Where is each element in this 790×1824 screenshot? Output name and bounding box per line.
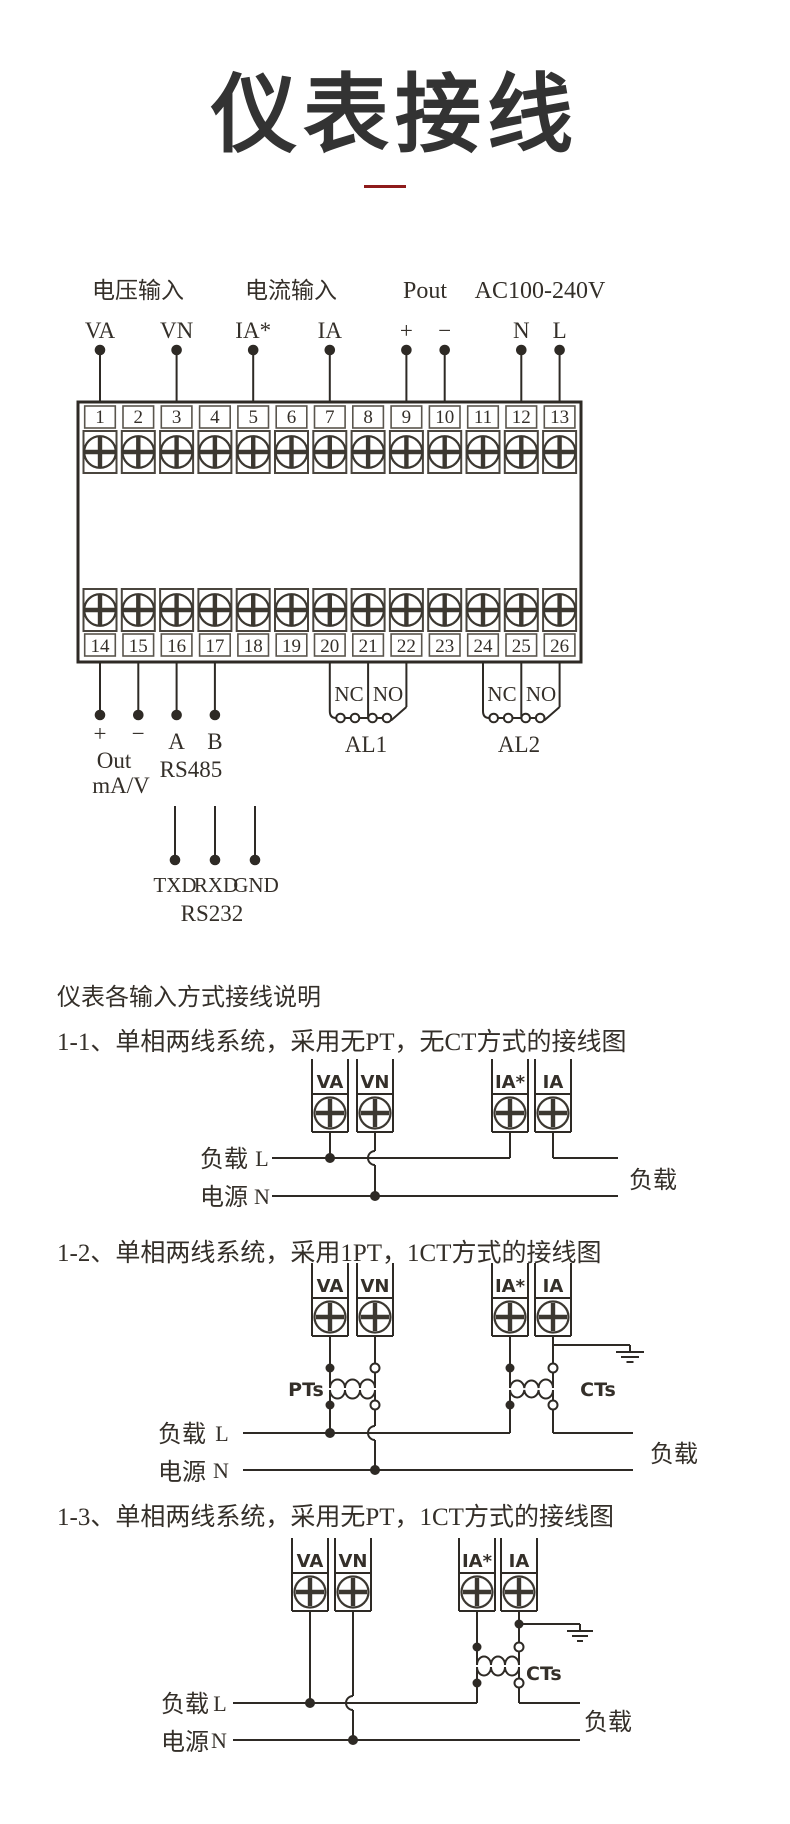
pin-txd: TXD xyxy=(153,873,196,897)
label-ac-supply: AC100-240V xyxy=(475,278,606,304)
term-vn: VN xyxy=(339,1551,368,1572)
diagram-1-3: VA VN IA* IA CTs 负载 L 电源 N 负载 xyxy=(0,1538,790,1763)
supply-lines xyxy=(243,1428,633,1475)
pt-label: PTs xyxy=(288,1379,324,1401)
term-va: VA xyxy=(317,1276,344,1297)
source-left-label: 电源 xyxy=(200,1184,248,1211)
term-ia-star: IA* xyxy=(495,1276,526,1297)
label-voltage-input: 电压输入 xyxy=(92,278,184,303)
terminal-number: 20 xyxy=(320,636,339,657)
terminal-number: 12 xyxy=(512,407,531,428)
supply-lines xyxy=(233,1698,580,1745)
pin-ia-star: IA* xyxy=(235,318,271,343)
term-vn: VN xyxy=(361,1276,390,1297)
al2-label: AL2 xyxy=(498,732,540,757)
load-right-label: 负载 xyxy=(584,1709,632,1736)
line-l-label: L xyxy=(213,1691,226,1716)
pin-pout-plus: + xyxy=(400,318,413,343)
pin-l: L xyxy=(553,318,567,343)
wires xyxy=(272,1132,618,1201)
title-accent-rule xyxy=(364,185,406,188)
terminal-number: 10 xyxy=(435,407,454,428)
terminal-number: 23 xyxy=(435,636,454,657)
load-left-label: 负载 xyxy=(158,1421,206,1448)
line-n-label: N xyxy=(213,1458,229,1483)
terminal-number: 16 xyxy=(167,636,186,657)
terminal-number: 7 xyxy=(325,407,335,428)
label-current-input: 电流输入 xyxy=(245,278,337,303)
source-left-label: 电源 xyxy=(158,1459,206,1486)
ct-label: CTs xyxy=(580,1379,616,1401)
terminal-number: 19 xyxy=(282,636,301,657)
terminal-number: 17 xyxy=(205,636,224,657)
top-lead-wires xyxy=(95,345,565,403)
terminal-number: 6 xyxy=(287,407,297,428)
rs232-lead-wires xyxy=(170,806,261,865)
main-wiring-diagram: 电压输入 电流输入 Pout AC100-240V VA VN IA* IA +… xyxy=(0,230,790,930)
pin-vn: VN xyxy=(160,318,194,343)
terminal-number: 24 xyxy=(474,636,494,657)
label-pout: Pout xyxy=(403,278,447,304)
pin-gnd: GND xyxy=(233,873,279,897)
term-ia: IA xyxy=(543,1072,564,1093)
term-ia-star: IA* xyxy=(462,1551,493,1572)
pin-ia: IA xyxy=(318,318,343,343)
pin-n: N xyxy=(513,318,530,343)
terminal-number: 5 xyxy=(248,407,258,428)
al2-nc-label: NC xyxy=(487,682,516,706)
terminal-number: 21 xyxy=(359,636,378,657)
label-out-unit: mA/V xyxy=(92,773,150,798)
al1-label: AL1 xyxy=(345,732,387,757)
term-ia: IA xyxy=(543,1276,564,1297)
pin-out-plus: + xyxy=(94,721,107,746)
term-vn: VN xyxy=(361,1072,390,1093)
term-va: VA xyxy=(317,1072,344,1093)
terminal-number: 3 xyxy=(172,407,182,428)
al1-nc-label: NC xyxy=(334,682,363,706)
term-ia-star: IA* xyxy=(495,1072,526,1093)
load-left-label: 负载 xyxy=(161,1691,209,1718)
line-l-label: L xyxy=(255,1146,268,1171)
ground-symbol xyxy=(515,1620,594,1642)
al1-no-label: NO xyxy=(373,682,403,706)
terminal-number: 8 xyxy=(363,407,373,428)
pin-out-minus: − xyxy=(132,721,145,746)
voltage-wires xyxy=(310,1611,353,1740)
terminal-number: 22 xyxy=(397,636,416,657)
label-rs485: RS485 xyxy=(160,757,223,782)
terminal-number: 4 xyxy=(210,407,220,428)
load-left-label: 负载 xyxy=(200,1146,248,1173)
diagram-1-2: VA VN IA* IA PTs CTs xyxy=(0,1262,790,1487)
diagram3-heading: 1-3、单相两线系统，采用无PT，1CT方式的接线图 xyxy=(57,1497,614,1533)
pt-transformer xyxy=(326,1336,380,1470)
load-right-label: 负载 xyxy=(629,1167,677,1194)
terminal-number: 18 xyxy=(244,636,263,657)
ground-symbol xyxy=(553,1345,644,1362)
terminal-number: 2 xyxy=(134,407,144,428)
terminal-number: 9 xyxy=(402,407,412,428)
terminal-number: 15 xyxy=(129,636,148,657)
page: 仪表接线 电压输入 电流输入 Pout AC100-240V VA VN xyxy=(0,0,790,1824)
label-out: Out xyxy=(97,748,132,773)
pin-rxd: RXD xyxy=(194,873,238,897)
pin-pout-minus: − xyxy=(438,318,451,343)
source-left-label: 电源 xyxy=(161,1729,209,1756)
intro-heading: 仪表各输入方式接线说明 xyxy=(57,977,321,1012)
pin-rs485-b: B xyxy=(207,729,222,754)
al2-no-label: NO xyxy=(526,682,556,706)
terminal-number: 1 xyxy=(95,407,105,428)
load-right-label: 负载 xyxy=(650,1441,698,1468)
terminal-number: 26 xyxy=(550,636,569,657)
line-n-label: N xyxy=(254,1184,270,1209)
term-va: VA xyxy=(297,1551,324,1572)
diagram1-heading: 1-1、单相两线系统，采用无PT，无CT方式的接线图 xyxy=(57,1022,626,1058)
term-ia: IA xyxy=(509,1551,530,1572)
terminal-number: 13 xyxy=(550,407,569,428)
label-rs232: RS232 xyxy=(181,901,244,926)
pin-rs485-a: A xyxy=(168,729,185,754)
terminal-number: 11 xyxy=(474,407,492,428)
terminal-number: 14 xyxy=(91,636,111,657)
pin-va: VA xyxy=(85,318,116,343)
terminal-number: 25 xyxy=(512,636,531,657)
line-n-label: N xyxy=(211,1728,227,1753)
ct-label: CTs xyxy=(526,1663,562,1685)
diagram-1-1: VA VN IA* IA 负载 L 电源 N 负载 xyxy=(0,1055,790,1240)
bottom-lead-wires xyxy=(95,662,221,720)
line-l-label: L xyxy=(215,1421,228,1446)
page-title: 仪表接线 xyxy=(0,44,790,169)
